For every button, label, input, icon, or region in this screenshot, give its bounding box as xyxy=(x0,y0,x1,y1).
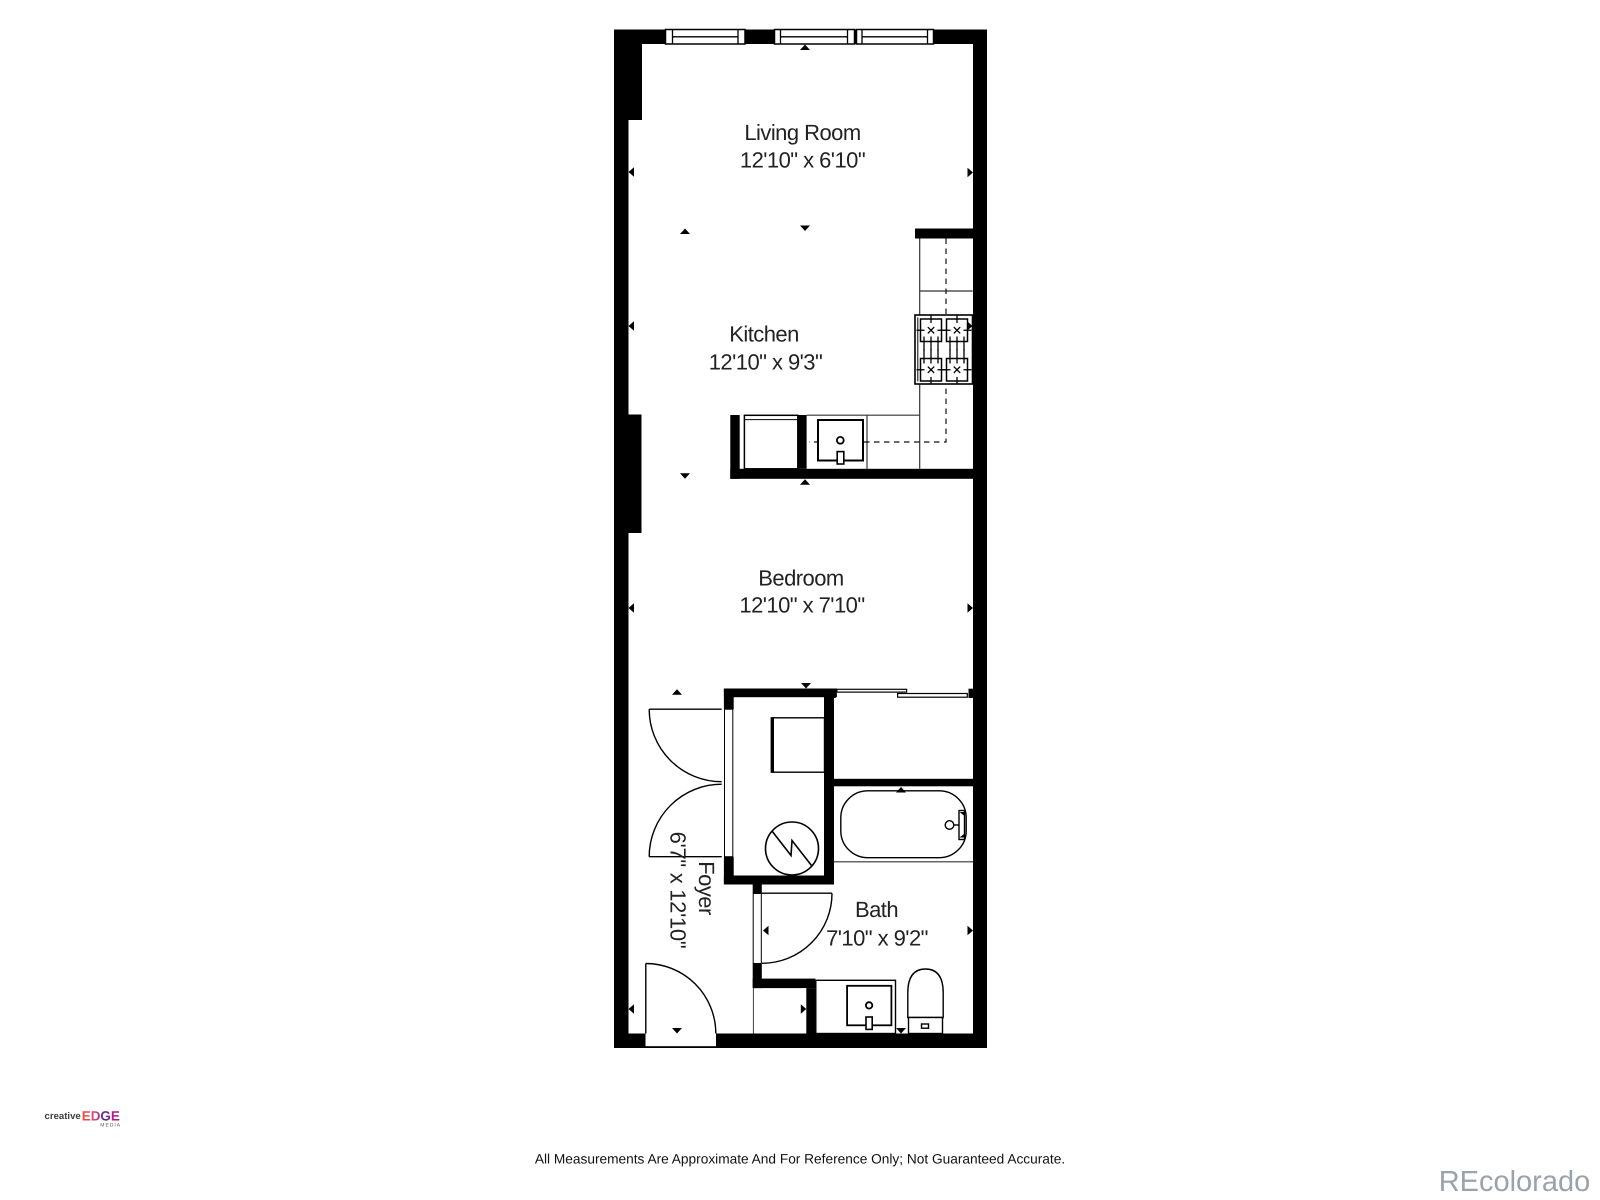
svg-text:12'10" x 9'3": 12'10" x 9'3" xyxy=(709,350,823,375)
svg-text:EDGE: EDGE xyxy=(82,1109,120,1124)
svg-text:6'7" x 12'10": 6'7" x 12'10" xyxy=(666,832,691,949)
svg-text:Foyer: Foyer xyxy=(694,861,719,915)
svg-text:MEDIA: MEDIA xyxy=(100,1123,121,1129)
svg-text:12'10" x 7'10": 12'10" x 7'10" xyxy=(739,593,864,618)
svg-text:12'10" x 6'10": 12'10" x 6'10" xyxy=(740,148,865,173)
svg-text:REcolorado: REcolorado xyxy=(1439,1166,1591,1198)
svg-text:Bath: Bath xyxy=(855,897,898,922)
svg-text:creative: creative xyxy=(45,1111,81,1122)
svg-text:Living Room: Living Room xyxy=(744,120,860,145)
svg-text:Bedroom: Bedroom xyxy=(758,566,843,591)
svg-text:Kitchen: Kitchen xyxy=(729,322,799,347)
svg-text:All Measurements Are Approxima: All Measurements Are Approximate And For… xyxy=(535,1152,1065,1167)
svg-text:7'10" x 9'2": 7'10" x 9'2" xyxy=(826,926,928,951)
